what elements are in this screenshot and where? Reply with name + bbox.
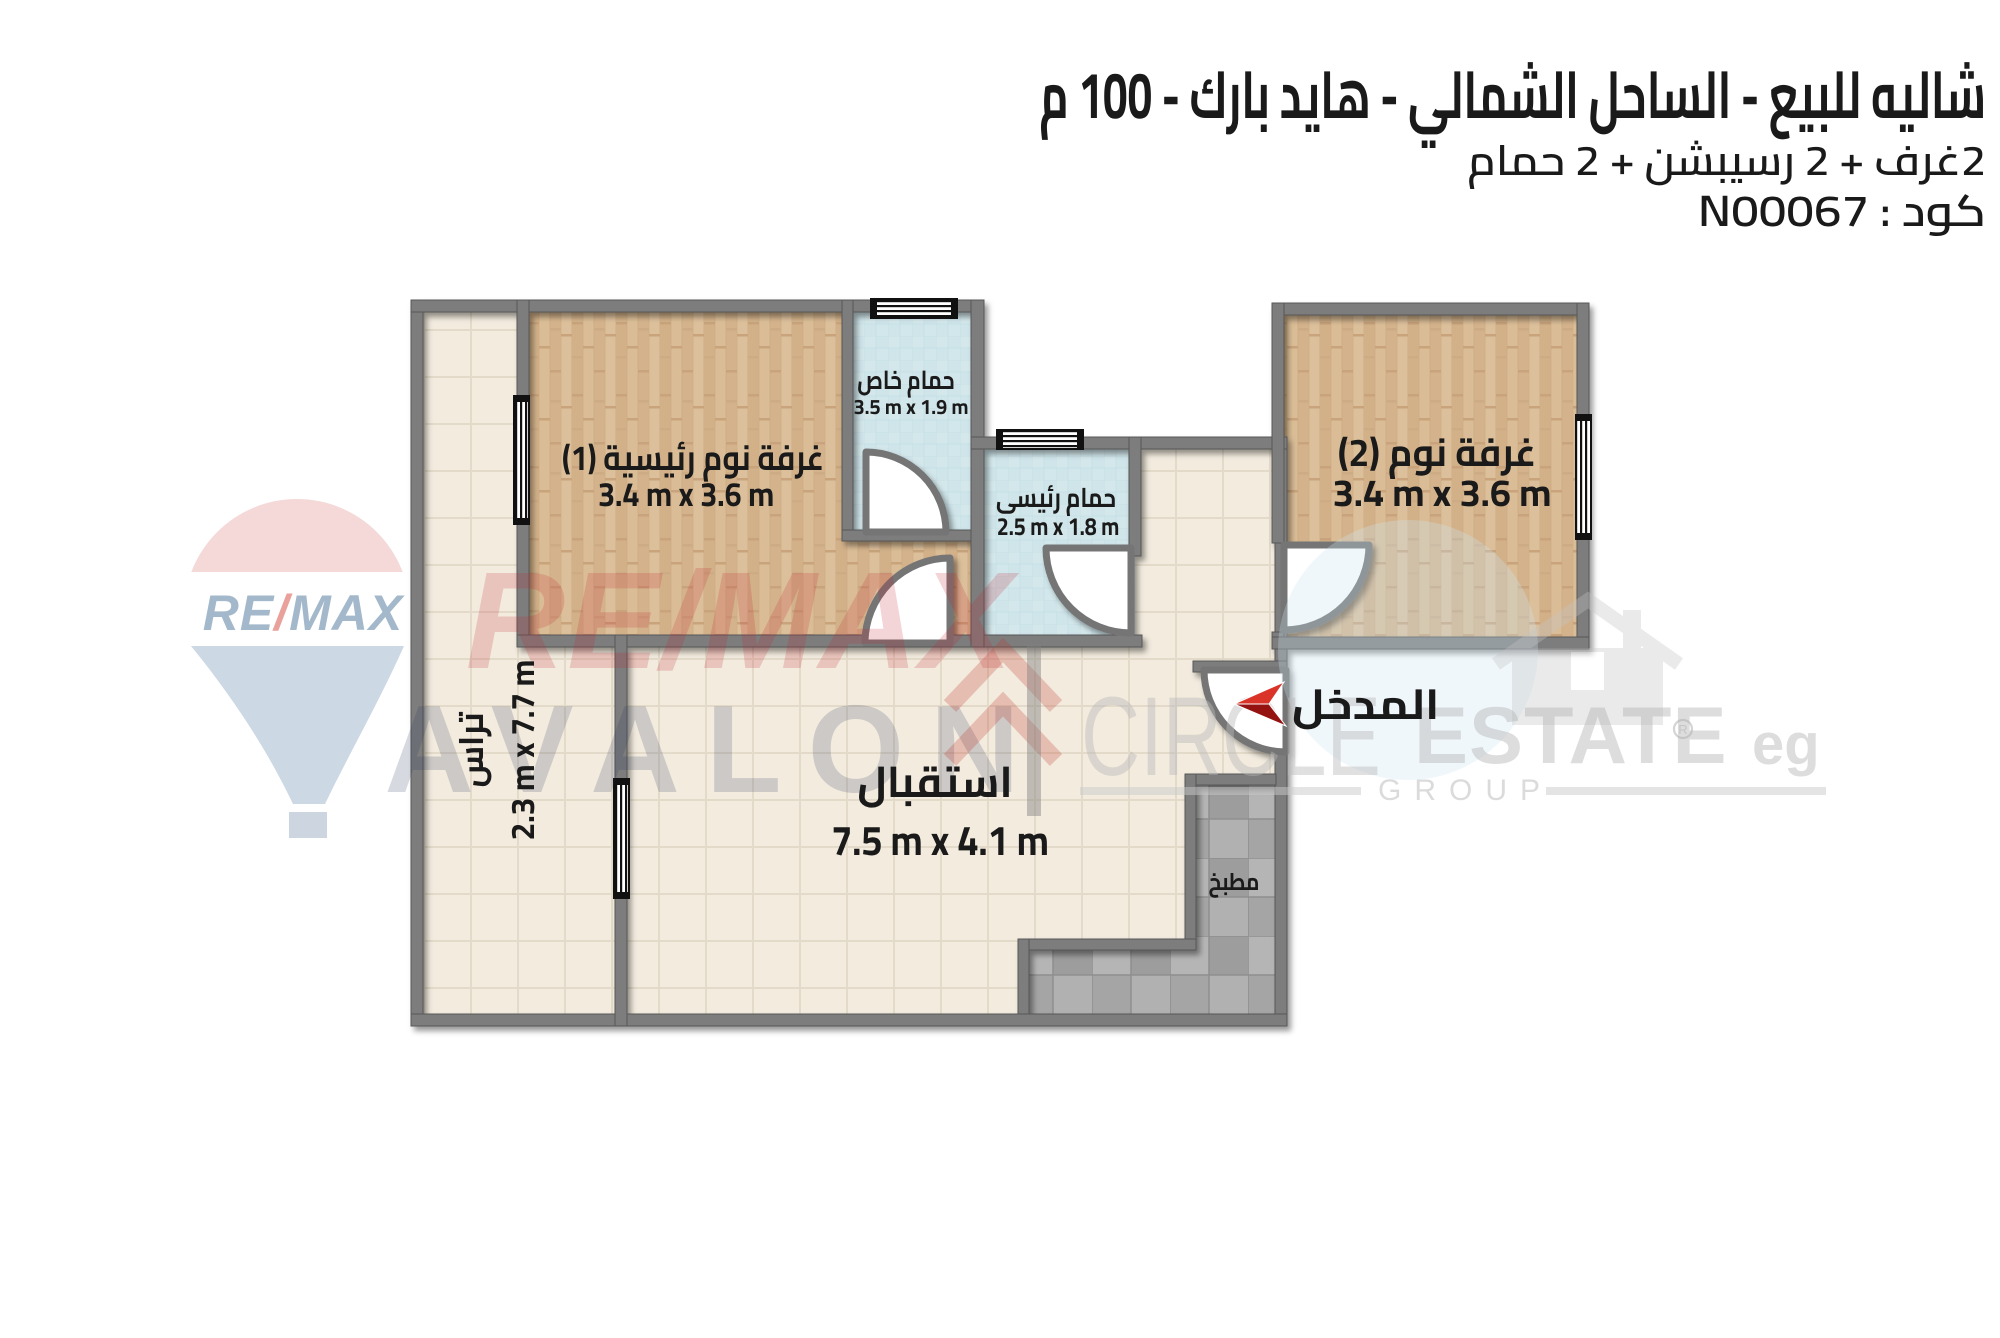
svg-text:RE/MAX: RE/MAX (466, 544, 1020, 698)
svg-text:ESTATE: ESTATE (1414, 691, 1728, 781)
svg-text:GROUP: GROUP (1378, 774, 1553, 807)
svg-text:RE/MAX: RE/MAX (203, 585, 405, 641)
svg-text:eg: eg (1752, 712, 1820, 777)
